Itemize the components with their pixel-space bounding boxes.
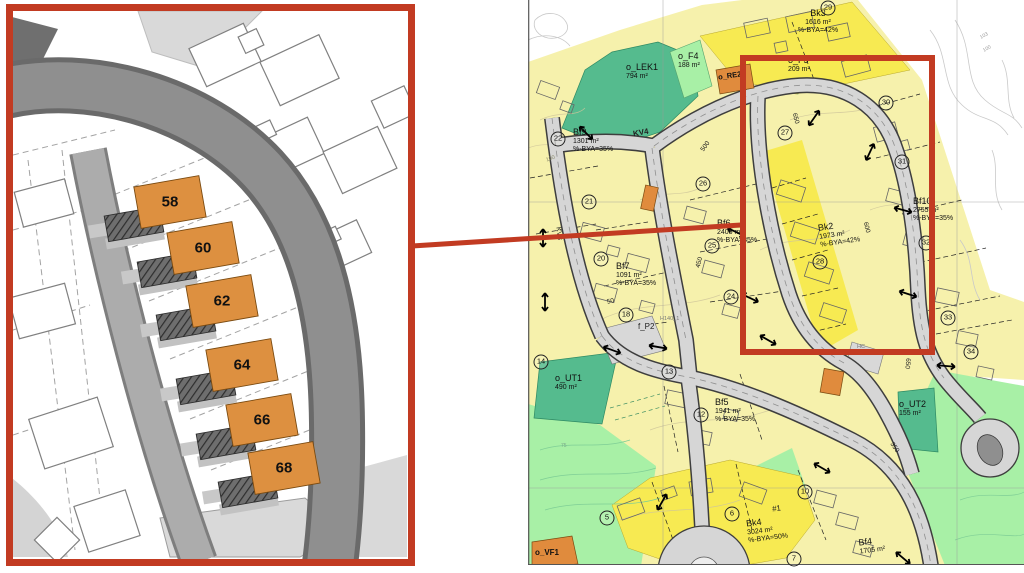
house-number-60: 60 <box>195 240 212 257</box>
lot-number: 18 <box>619 308 634 323</box>
lot-number: 10 <box>798 485 813 500</box>
lot-number: 13 <box>662 365 677 380</box>
lot-number: 22 <box>551 132 566 147</box>
annotation-hash1: #1 <box>771 503 781 513</box>
zone-label-o-f4: o_F4 188 m² <box>678 51 700 70</box>
zone-label-bf5: Bf5 1941 m² %-BYA=35% <box>715 397 755 425</box>
zone-label-bf4: Bf4 1705 m² <box>858 535 886 557</box>
lot-number: 14 <box>534 355 549 370</box>
zoning-map-panel: Bk3 1616 m² %-BYA=42% o_LEK1 794 m² o_F4… <box>528 0 1024 573</box>
lot-number: 33 <box>941 311 956 326</box>
zone-label-o-lek1: o_LEK1 794 m² <box>626 62 658 81</box>
zone-label-bf7: Bf7 1091 m² %-BYA=35% <box>616 261 656 289</box>
lot-number: 24 <box>724 290 739 305</box>
inset-detail-panel: 58 60 62 64 66 68 <box>6 4 415 566</box>
lot-number: 5 <box>600 511 615 526</box>
zone-label-bk4: Bk4 3024 m² %-BYA=50% <box>745 514 788 546</box>
contour-label-75: 75 <box>561 443 567 449</box>
lot-number: 29 <box>821 1 836 16</box>
house-number-58: 58 <box>162 194 179 211</box>
road-station-650b: 650 <box>903 358 911 369</box>
zone-label-bk3: Bk3 1616 m² %-BYA=42% <box>778 8 858 36</box>
road-label-kv3: KV3 <box>554 227 563 241</box>
zone-label-bf9: Bf9 1301 m² %-BYA=35% <box>573 127 613 155</box>
house-number-66: 66 <box>254 412 271 429</box>
zone-label-o-vf1: o_VF1 <box>535 548 559 558</box>
house-number-68: 68 <box>276 460 293 477</box>
annotation-fp2: f_P2 <box>638 322 654 331</box>
lot-number: 6 <box>725 507 740 522</box>
lot-number: 7 <box>787 552 802 567</box>
map-margin-bottom <box>528 565 1024 573</box>
house-number-62: 62 <box>214 293 231 310</box>
annotation-h140: H140_1 <box>660 316 679 322</box>
lot-number: 25 <box>705 239 720 254</box>
zoning-plan-screenshot: { "colors":{"accent_red":"#C23B22","pale… <box>0 0 1024 573</box>
lot-number: 34 <box>964 345 979 360</box>
lot-number: 26 <box>696 177 711 192</box>
lot-number: 12 <box>694 408 709 423</box>
lot-number: 20 <box>594 252 609 267</box>
zone-label-o-ut1: o_UT1 490 m² <box>555 373 582 392</box>
lot-number: 21 <box>582 195 597 210</box>
house-number-64: 64 <box>234 357 251 374</box>
highlight-rect <box>740 55 935 355</box>
inset-site-plan <box>13 11 408 559</box>
zone-label-o-ut2: o_UT2 155 m² <box>899 399 926 418</box>
